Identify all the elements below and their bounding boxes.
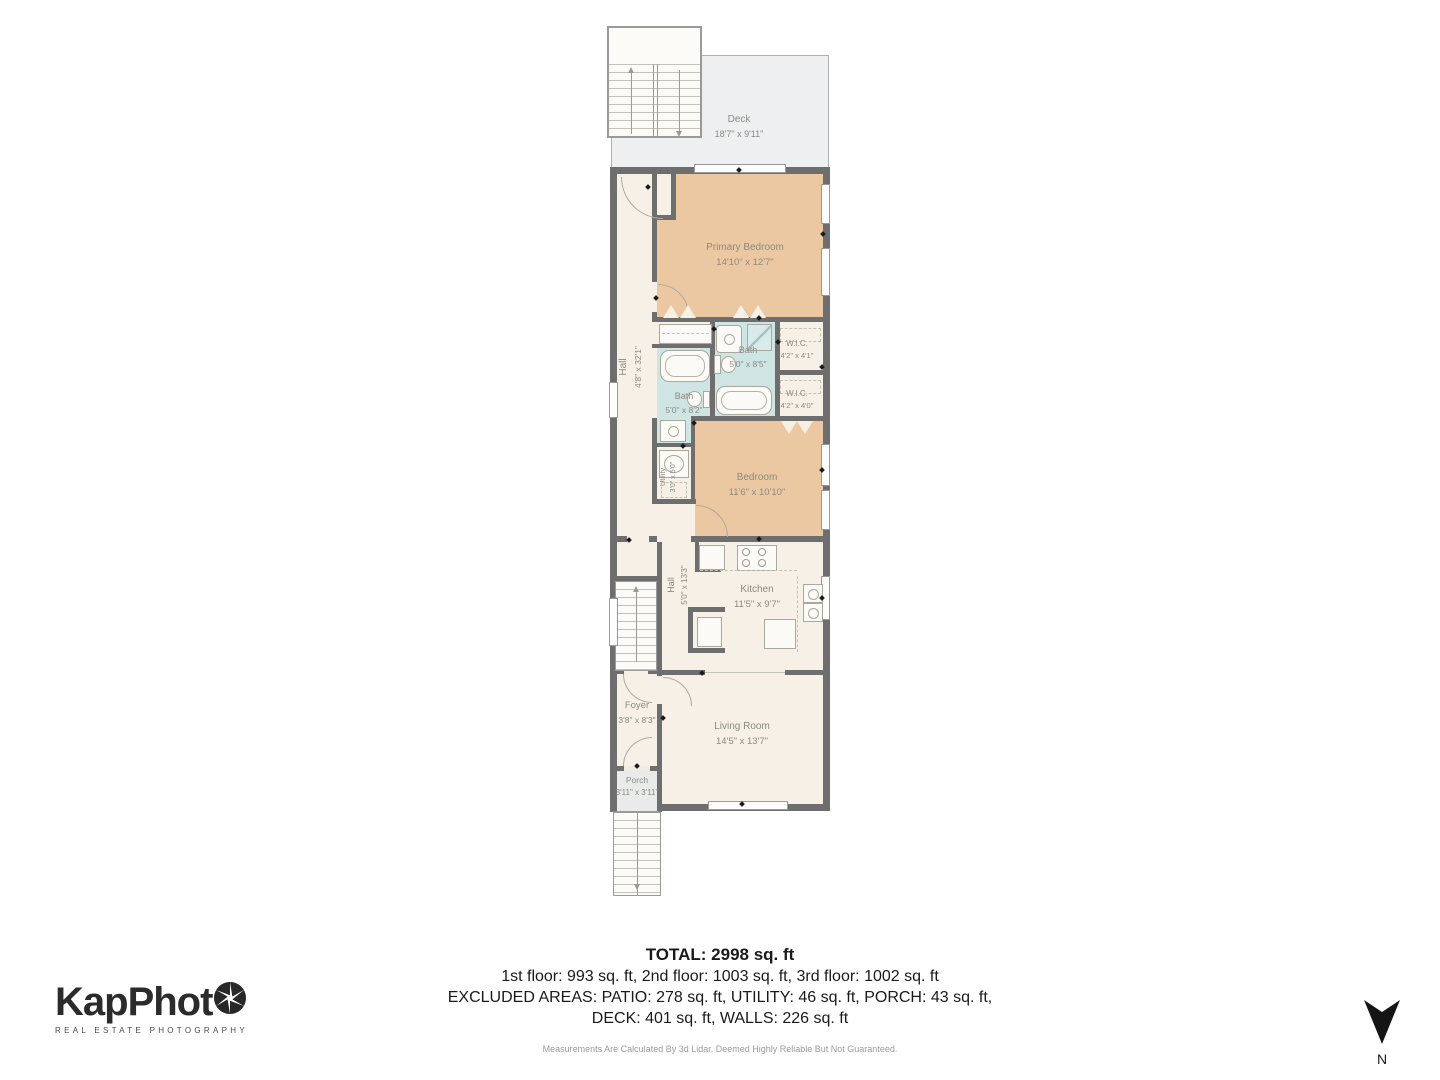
wall-segment (671, 174, 676, 220)
refrigerator (699, 545, 725, 570)
room-name: Hall (616, 309, 632, 425)
north-label: N (1360, 1051, 1404, 1067)
wall-segment (691, 416, 695, 504)
disclaimer-text: Measurements Are Calculated By 3d Lidar.… (0, 1044, 1440, 1054)
stair-divider (657, 64, 658, 138)
deck-label: Deck 18'7" x 9'11" (689, 112, 789, 141)
closet-bifold-icon (663, 305, 679, 318)
stair-arrow-up-head (633, 586, 639, 592)
pantry-cabinet (697, 617, 722, 647)
wall-segment (657, 542, 662, 670)
cased-opening (705, 672, 785, 673)
logo-wordmark: KapPhot (55, 980, 285, 1025)
compass: N (1360, 998, 1404, 1067)
room-name: Bedroom (697, 470, 817, 486)
room-dims: 3'0" x 5'0" (669, 437, 680, 517)
stair-arrow-down (679, 70, 680, 132)
stair-arrow-down (637, 819, 638, 885)
bathtub (716, 386, 772, 415)
window (821, 490, 830, 530)
counter-dash (700, 570, 797, 571)
wall-segment (652, 344, 715, 348)
stove-burner (742, 559, 750, 567)
room-dims: 5'0" x 8'2" (644, 404, 724, 417)
room-dims: 4'2" x 4'1" (771, 350, 823, 362)
stair-treads (609, 64, 700, 136)
bath-lower-label: Bath 5'0" x 8'2" (644, 390, 724, 417)
utility-label: Utility 3'0" x 5'0" (657, 437, 679, 517)
room-name: Primary Bedroom (685, 240, 805, 256)
total-area-text: TOTAL: 2998 sq. ft (0, 945, 1440, 965)
bathtub (660, 350, 710, 382)
window (708, 801, 788, 810)
stove-burner (758, 559, 766, 567)
stair-arrow-up (636, 590, 637, 662)
window (821, 184, 830, 224)
stair-arrow-up-head (628, 67, 634, 73)
room-name: Kitchen (697, 582, 817, 598)
hall-upper-label: Hall 4'8" x 32'1" (616, 309, 642, 425)
wall-segment (785, 670, 823, 675)
stove-burner (742, 548, 750, 556)
room-dims: 3'8" x 8'3" (597, 714, 677, 727)
room-dims: 5'0" x 13'3" (679, 527, 691, 643)
kapphoto-logo: KapPhot REAL ESTATE PHOTOGRAPHY (55, 980, 285, 1035)
room-dims: 18'7" x 9'11" (689, 128, 789, 142)
stair-arrow-down-head (676, 131, 682, 137)
stair-arrow-up (631, 72, 632, 134)
bedroom-label: Bedroom 11'6" x 10'10" (697, 470, 817, 500)
room-name: Hall (665, 527, 679, 643)
room-dims: 11'5" x 9'7" (697, 598, 817, 613)
north-arrow-icon (1361, 1033, 1403, 1050)
room-name: Deck (689, 112, 789, 128)
stove-burner (758, 548, 766, 556)
aperture-icon (213, 980, 247, 1025)
closet-bifold-icon (680, 305, 696, 318)
interior-stairs (615, 581, 657, 671)
stair-divider (653, 64, 654, 138)
room-dims: 4'8" x 32'1" (632, 309, 645, 425)
room-name: Foyer (597, 699, 677, 714)
window (821, 248, 830, 296)
logo-tagline: REAL ESTATE PHOTOGRAPHY (55, 1026, 285, 1035)
kitchen-label: Kitchen 11'5" x 9'7" (697, 582, 817, 612)
room-name: Living Room (682, 719, 802, 735)
window (609, 598, 618, 646)
deck-stairs (607, 26, 702, 138)
room-dims: 14'5" x 13'7" (682, 735, 802, 750)
room-dims: 4'2" x 4'0" (771, 400, 823, 412)
kitchen-island (764, 619, 796, 649)
wall-segment (688, 648, 725, 653)
window (821, 444, 830, 486)
closet-bifold-icon (781, 421, 797, 434)
wall-segment (657, 668, 662, 676)
room-dims: 14'10" x 12'7" (685, 256, 805, 271)
porch-stairs (613, 812, 661, 896)
logo-text: KapPhot (55, 980, 212, 1025)
room-dims: 3'11" x 3'11" (599, 787, 675, 799)
floor-plan: Deck 18'7" x 9'11" (0, 0, 1440, 1080)
hall-lower-label: Hall 5'0" x 13'3" (665, 527, 689, 643)
closet-bifold-icon (733, 305, 749, 318)
room-dims: 11'6" x 10'10" (697, 486, 817, 501)
porch-label: Porch 3'11" x 3'11" (599, 774, 675, 800)
foyer-label: Foyer 3'8" x 8'3" (597, 699, 677, 727)
closet-bifold-icon (797, 421, 813, 434)
room-name: Porch (599, 774, 675, 787)
stair-arrow-down-head (634, 884, 640, 890)
cabinet (659, 324, 712, 344)
living-room-label: Living Room 14'5" x 13'7" (682, 719, 802, 749)
room-name: W.I.C. (771, 388, 823, 400)
room-name: Bath (644, 390, 724, 404)
wic-lower-label: W.I.C. 4'2" x 4'0" (771, 388, 823, 412)
primary-bedroom-label: Primary Bedroom 14'10" x 12'7" (685, 240, 805, 270)
wall-segment (649, 536, 657, 542)
room-name: Utility (657, 437, 669, 517)
cabinet-dash (662, 333, 709, 334)
